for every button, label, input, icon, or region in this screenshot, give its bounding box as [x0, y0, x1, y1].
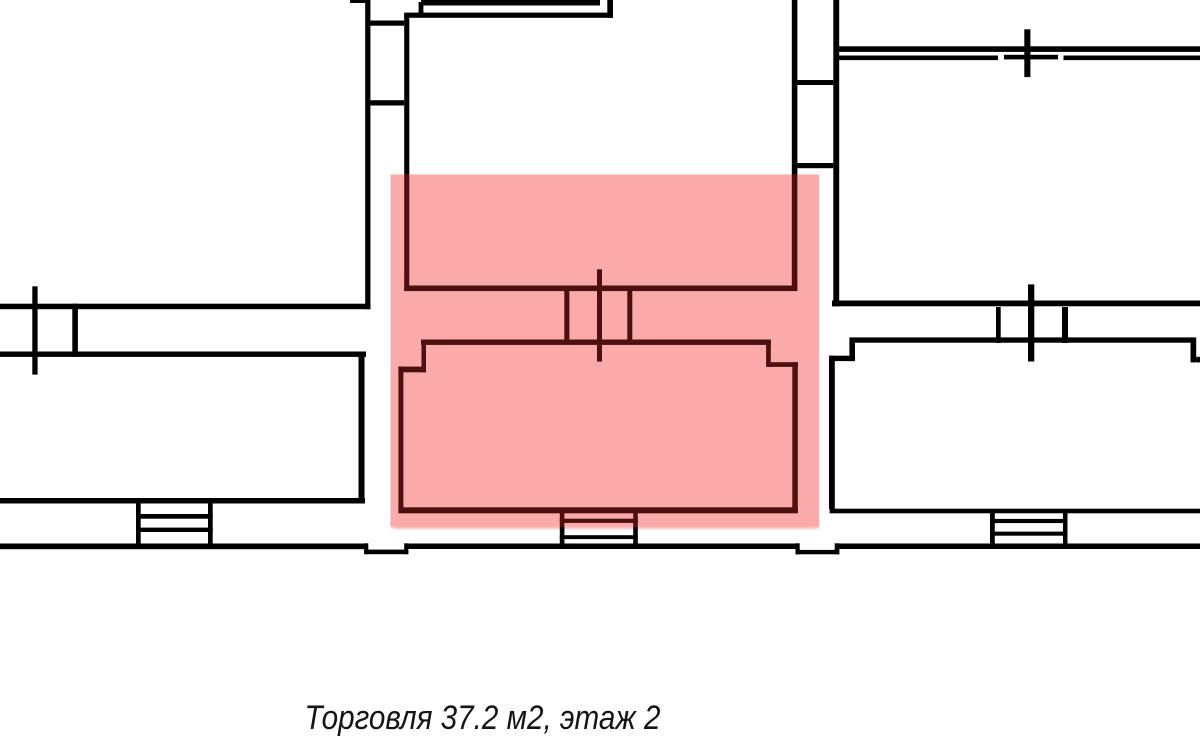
svg-text:Торговля 37.2 м2, этаж 2: Торговля 37.2 м2, этаж 2	[305, 699, 661, 737]
